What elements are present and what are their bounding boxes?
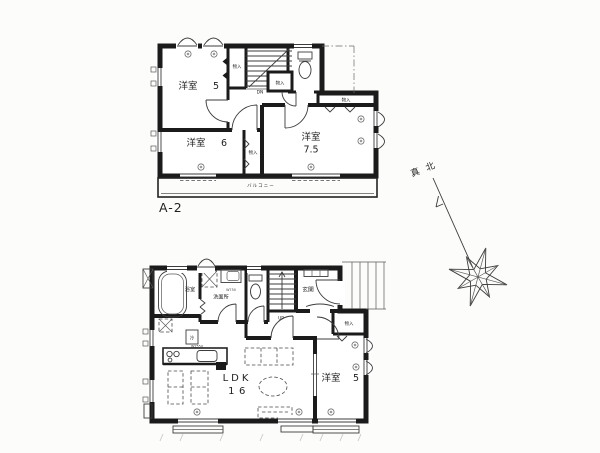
entrance-porch (342, 262, 386, 309)
floorplan-drawing: 物入 物入 物入 物入 (0, 0, 600, 453)
closet-label: 物入 (342, 97, 351, 104)
boundary-dashdot-line (322, 46, 354, 93)
room-label-yoshitsu6: 洋室 (186, 137, 205, 149)
plan-name-label: A-2 (159, 200, 183, 215)
compass-star-icon (449, 248, 507, 306)
floor2-outer-walls (160, 46, 376, 176)
room-label-entrance: 玄関 (302, 286, 314, 294)
room-size-ldk: 16 (228, 386, 250, 397)
floor1-plan: 物入 冷 W2550 W750 (143, 259, 386, 441)
room-size-yoshitsu5-1f: 5 (353, 373, 359, 384)
dimension-ticks (160, 434, 361, 441)
room-label-bathroom: 浴室 (185, 285, 195, 293)
room-size-yoshitsu5-2f: 5 (213, 81, 219, 92)
room-size-yoshitsu75: 7.5 (303, 145, 318, 156)
closet-label: 物入 (249, 149, 258, 156)
room-label-yoshitsu5-1f: 洋室 (321, 372, 340, 384)
room-label-yoshitsu5-2f: 洋室 (178, 80, 197, 92)
stair-direction-label-1f: UP (278, 316, 284, 322)
room-label-washroom: 洗面所 (213, 293, 229, 301)
north-indicator: 真北 (409, 157, 507, 306)
true-north-label: 真北 (409, 157, 443, 180)
room-label-yoshitsu75: 洋室 (301, 131, 320, 143)
stair-direction-label-2f: DN (257, 90, 264, 96)
floorplan-page: 物入 物入 物入 物入 (0, 0, 600, 453)
room-size-yoshitsu6: 6 (221, 138, 227, 149)
closet-label-1f: 物入 (345, 320, 354, 327)
vanity-width-label: W750 (226, 288, 236, 292)
closet-label: 物入 (276, 80, 285, 87)
floor2-plan: 物入 物入 物入 物入 (151, 38, 385, 215)
closet-label: 物入 (233, 63, 242, 70)
balcony-label: バルコニー (247, 183, 275, 189)
north-line (433, 178, 473, 268)
fridge-label: 冷 (190, 335, 195, 342)
kitchen-width-label: W2550 (191, 345, 203, 349)
room-label-ldk: LDK (223, 373, 252, 384)
